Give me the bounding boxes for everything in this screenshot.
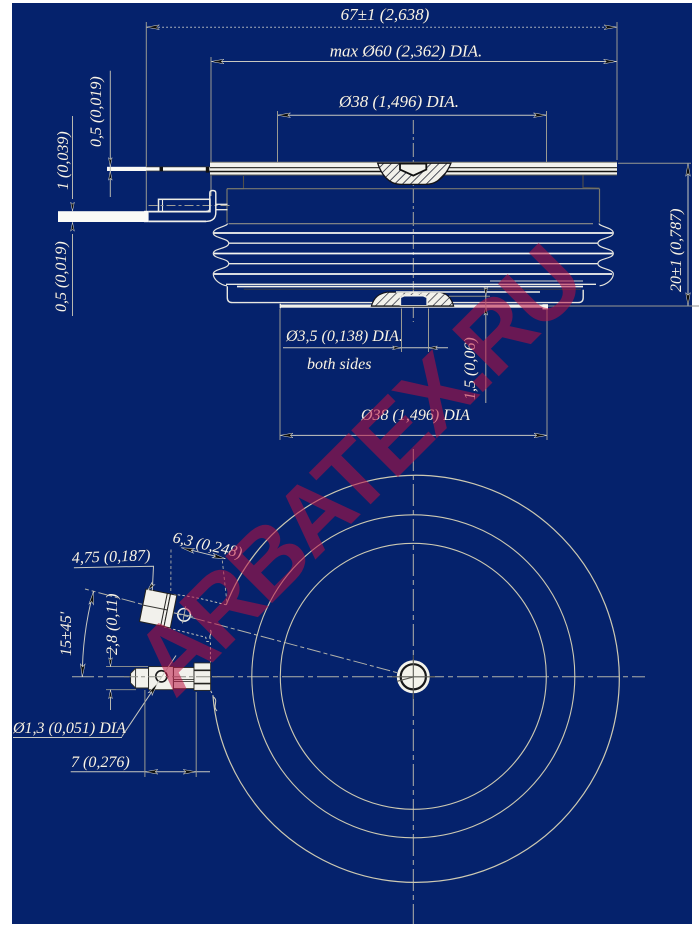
svg-text:4,75 (0,187): 4,75 (0,187) xyxy=(72,547,151,567)
svg-text:20±1 (0,787): 20±1 (0,787) xyxy=(668,209,685,292)
svg-text:both sides: both sides xyxy=(307,356,371,373)
svg-text:Ø1,3 (0,051) DIA: Ø1,3 (0,051) DIA xyxy=(12,720,126,737)
svg-text:Ø38 (1,496) DIA.: Ø38 (1,496) DIA. xyxy=(338,92,459,111)
svg-text:0,5 (0,019): 0,5 (0,019) xyxy=(88,76,105,147)
svg-text:2,8 (0,11): 2,8 (0,11) xyxy=(104,594,121,655)
svg-text:max Ø60 (2,362) DIA.: max Ø60 (2,362) DIA. xyxy=(330,42,483,61)
svg-text:0,5 (0,019): 0,5 (0,019) xyxy=(53,241,70,312)
svg-text:15±45': 15±45' xyxy=(58,611,75,656)
svg-text:Ø3,5 (0,138) DIA.: Ø3,5 (0,138) DIA. xyxy=(285,328,403,345)
svg-text:1 (0,039): 1 (0,039) xyxy=(55,131,72,190)
svg-text:7 (0,276): 7 (0,276) xyxy=(71,754,130,771)
svg-text:67±1 (2,638): 67±1 (2,638) xyxy=(341,5,430,24)
